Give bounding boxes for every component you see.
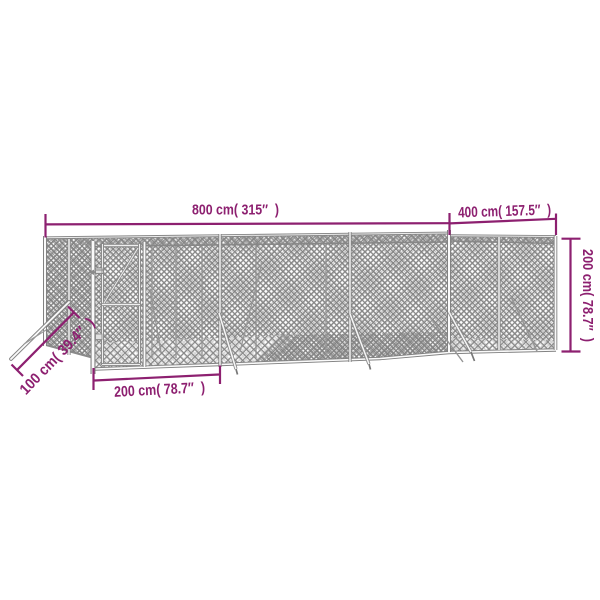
- svg-text:400 cm( 157.5″ ): 400 cm( 157.5″ ): [458, 202, 551, 222]
- svg-text:200 cm( 78.7″ ): 200 cm( 78.7″ ): [579, 249, 596, 342]
- svg-text:800 cm( 315″ ): 800 cm( 315″ ): [192, 202, 279, 219]
